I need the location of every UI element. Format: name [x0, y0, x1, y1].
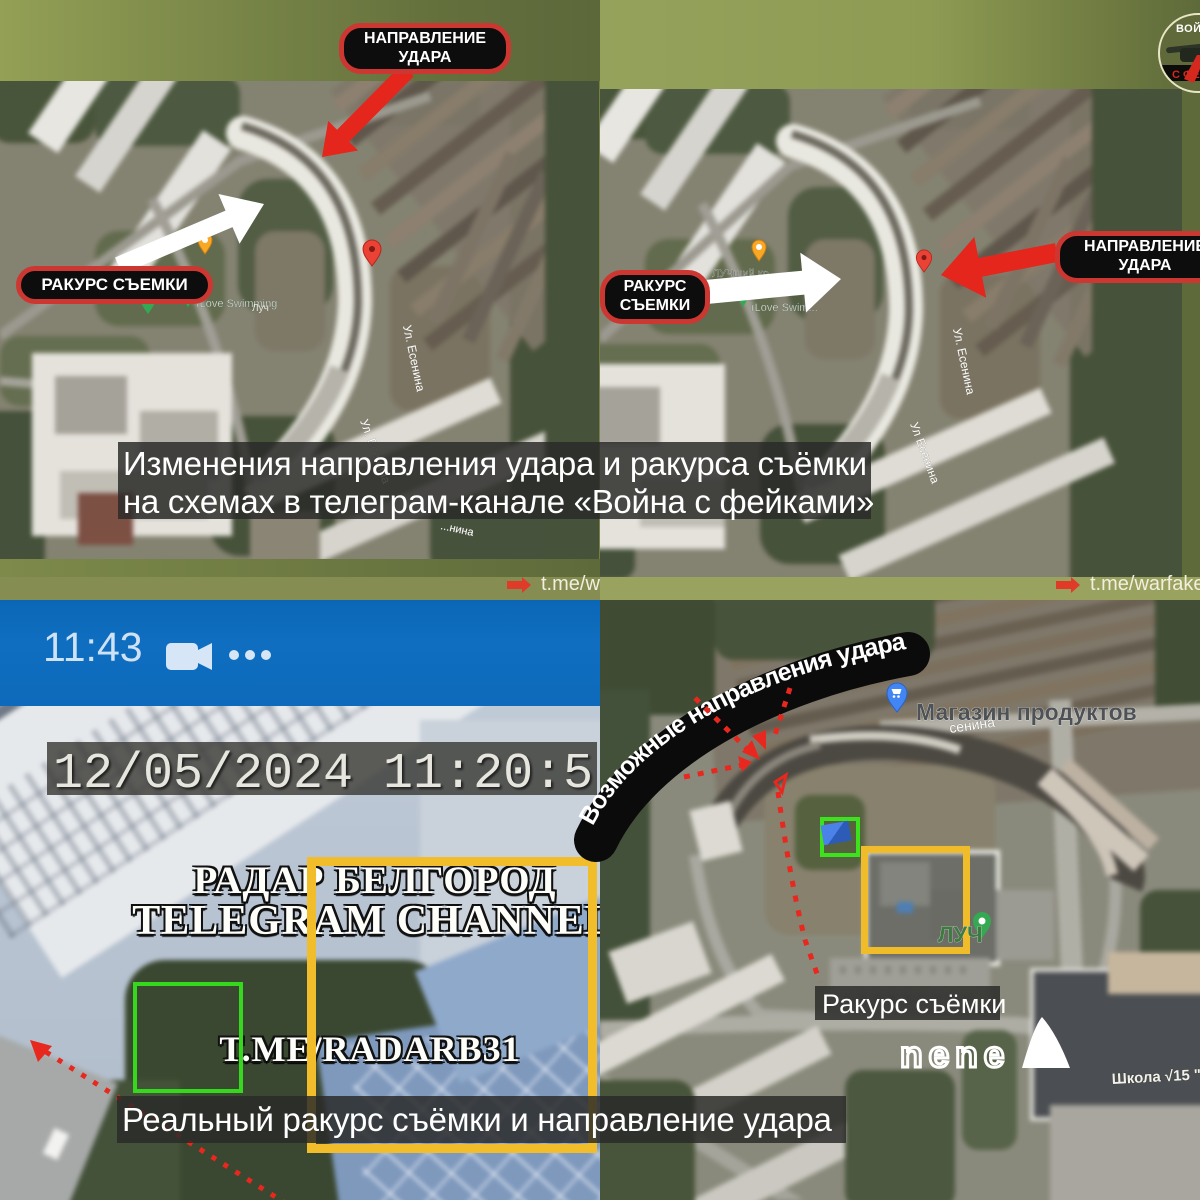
svg-text:nene: nene [900, 1034, 1010, 1075]
